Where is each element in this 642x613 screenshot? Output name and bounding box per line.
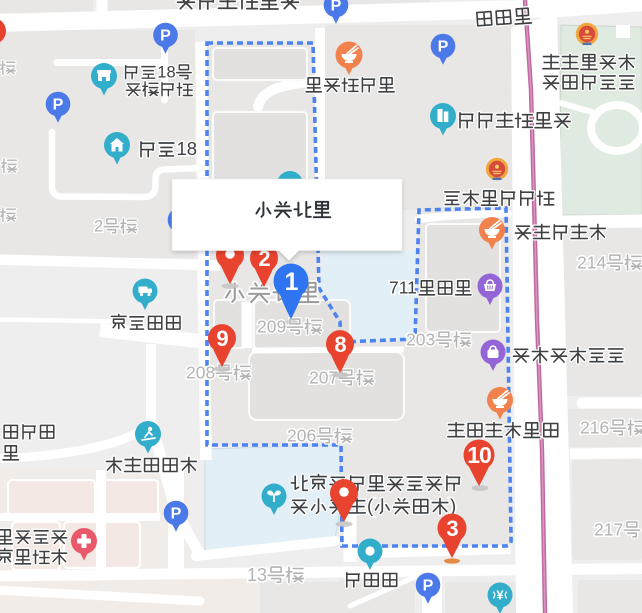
- svg-text:P: P: [53, 96, 64, 113]
- svg-text:18: 18: [157, 64, 175, 82]
- svg-text:2: 2: [94, 218, 103, 236]
- svg-text:P: P: [423, 577, 434, 594]
- svg-text:13: 13: [247, 565, 267, 585]
- svg-text:217: 217: [594, 519, 623, 539]
- svg-text:10: 10: [467, 442, 491, 468]
- svg-text:18: 18: [177, 138, 198, 159]
- svg-text:8: 8: [334, 332, 346, 357]
- svg-text:P: P: [160, 27, 171, 44]
- svg-text:207: 207: [309, 367, 338, 387]
- svg-text:711: 711: [389, 277, 417, 297]
- svg-text:9: 9: [216, 326, 228, 351]
- svg-text:P: P: [171, 505, 182, 522]
- svg-text:): ): [450, 495, 456, 516]
- svg-text:214: 214: [577, 252, 606, 272]
- svg-text:216: 216: [580, 417, 609, 437]
- svg-text:P: P: [438, 38, 449, 55]
- svg-text:206: 206: [287, 425, 316, 445]
- svg-text:¥: ¥: [496, 588, 504, 603]
- svg-text:209: 209: [257, 316, 286, 336]
- svg-text:3: 3: [446, 516, 458, 541]
- svg-text:P: P: [331, 0, 342, 14]
- svg-text:(: (: [367, 495, 374, 516]
- svg-text:203: 203: [406, 329, 435, 349]
- svg-text:208: 208: [186, 362, 215, 382]
- svg-text:1: 1: [285, 268, 299, 296]
